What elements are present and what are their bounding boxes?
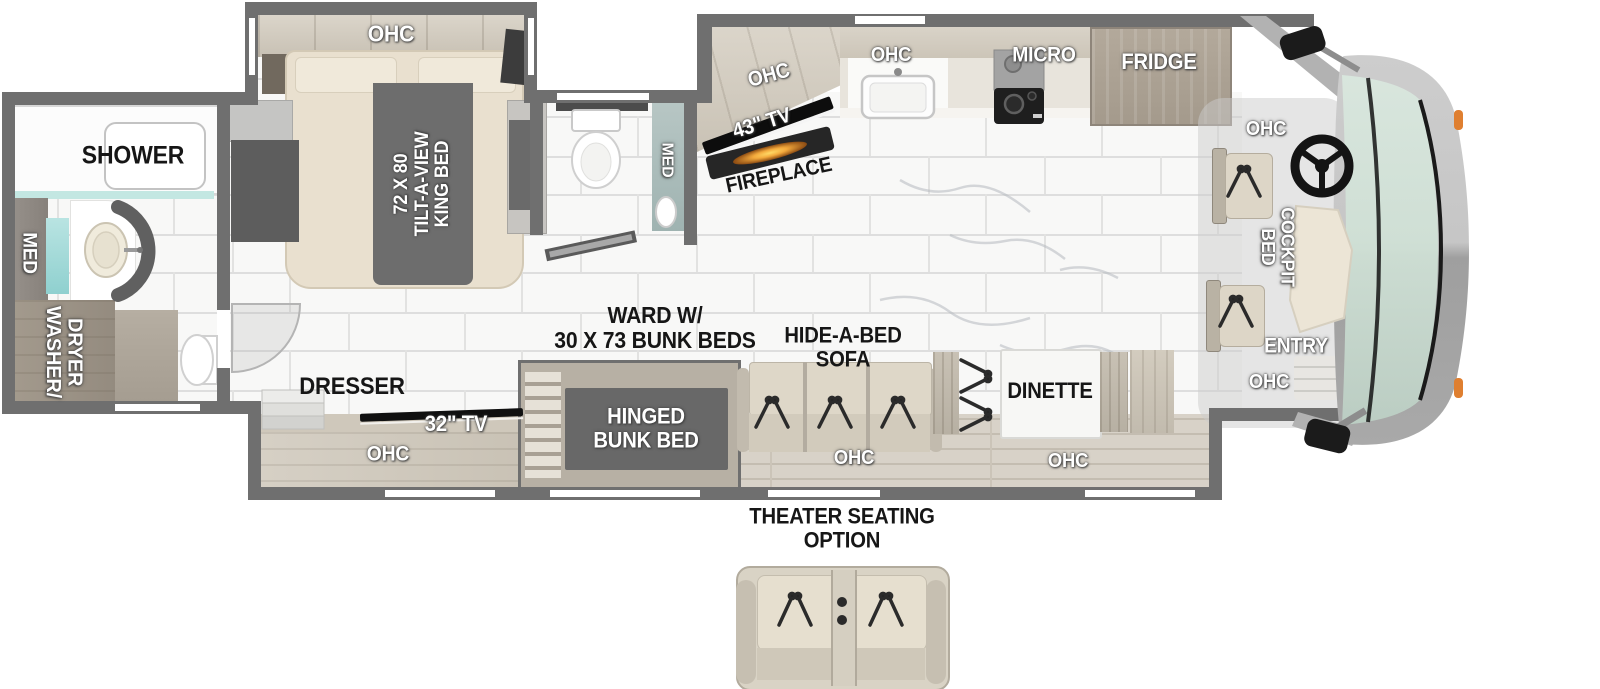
tv-32-label: 32" TV <box>425 412 488 436</box>
window-bedslide-left <box>249 18 255 75</box>
fireplace-label: FIREPLACE <box>724 154 834 199</box>
dinette-cabinet-right <box>1130 350 1174 433</box>
window-rear-bottom <box>115 404 200 411</box>
ohc-bedroom-label: OHC <box>368 22 414 47</box>
counter-front-edge <box>840 108 1090 118</box>
windshield-edge <box>1420 100 1441 400</box>
bedroom-tv-left <box>231 140 299 242</box>
entry-steps <box>1294 356 1338 400</box>
window-slide-4 <box>1085 490 1195 497</box>
ward-bunks-label: WARD W/ 30 X 73 BUNK BEDS <box>554 303 755 353</box>
windshield <box>1342 75 1438 425</box>
kitchen-ohc-angled <box>697 27 845 152</box>
wall-midbath-left <box>530 103 543 235</box>
wall-slide-left <box>248 401 261 499</box>
fridge-label: FRIDGE <box>1121 50 1196 74</box>
wall-rear-right-lower <box>217 368 230 414</box>
hide-a-bed-label: HIDE-A-BED SOFA <box>784 323 901 371</box>
window-slide-1 <box>385 490 495 497</box>
bunk-ladder <box>525 372 561 478</box>
rear-toilet <box>181 335 213 385</box>
wall-bottom-right-seg <box>1222 408 1344 421</box>
wall-kitchen-top <box>697 14 1314 27</box>
bedroom-cabinet-left <box>229 100 293 142</box>
rear-bath-cabinet <box>115 310 178 401</box>
window-bedslide-right <box>528 18 534 75</box>
ohc-dresser-label: OHC <box>367 444 409 467</box>
wall-rear-right-upper <box>217 92 230 310</box>
sofa-divider-1 <box>803 362 807 452</box>
midbath-shelf <box>556 102 648 111</box>
entry-label: ENTRY <box>1264 336 1328 359</box>
king-bed-label: 72 X 80 TILT-A-VIEW KING BED <box>392 132 454 237</box>
wall-midbath-right <box>684 103 697 245</box>
toilet-bowl <box>572 132 620 188</box>
wall-rear-top <box>2 92 230 105</box>
dinette-cabinet-left <box>933 352 959 434</box>
ohc-sink-label: OHC <box>871 45 911 67</box>
wall-rear-left <box>2 92 15 414</box>
midbath-door <box>545 230 637 261</box>
bath-door-swing <box>232 304 300 372</box>
window-slide-3 <box>768 490 880 497</box>
cockpit-bed-label: COCKPIT BED <box>1258 207 1297 287</box>
wall-bedslide-top <box>245 2 537 15</box>
passenger-seat <box>1219 285 1265 347</box>
theater-seating-label: THEATER SEATING OPTION <box>749 504 934 552</box>
ohc-dinette-label: OHC <box>1048 451 1088 473</box>
wall-slide-right <box>1209 408 1222 500</box>
mirror-top <box>1278 17 1359 91</box>
dinette-label: DINETTE <box>1007 379 1092 403</box>
window-kitchen-top <box>855 16 925 24</box>
vanity-counter <box>70 200 136 302</box>
micro-label: MICRO <box>1012 45 1075 68</box>
wall-kitchen-jog <box>697 14 712 103</box>
washer-dryer-label: WASHER/ DRYER <box>41 306 84 398</box>
window-midbath-top <box>557 93 649 100</box>
shower-label: SHOWER <box>82 143 184 170</box>
ohc-cockpit-bottom-label: OHC <box>1249 372 1289 394</box>
marble-veins <box>880 180 1126 363</box>
rear-toilet-tank <box>202 336 217 384</box>
toilet-tank <box>572 110 620 131</box>
sofa-arm-left <box>737 368 749 452</box>
hinged-bunk-label: HINGED BUNK BED <box>593 404 698 452</box>
ohc-sofa-label: OHC <box>834 448 874 470</box>
med-midbath-label: MED <box>658 143 675 178</box>
window-slide-2 <box>550 490 700 497</box>
dinette-bench-right <box>1100 352 1128 432</box>
front-cap-body <box>1334 55 1470 445</box>
cap-side-rail-top <box>1240 16 1360 102</box>
med-mirror <box>46 218 69 294</box>
rv-floorplan-canvas: SHOWER MED WASHER/ DRYER OHC 72 X 80 TIL… <box>0 0 1600 689</box>
med-rear-label: MED <box>18 232 39 274</box>
theater-armrest-left <box>736 580 756 684</box>
theater-armrest-right <box>926 580 946 684</box>
marker-light-top <box>1454 110 1463 130</box>
marker-light-bottom <box>1454 378 1463 398</box>
windshield-divider <box>1368 78 1379 422</box>
sofa-divider-2 <box>866 362 870 452</box>
ohc-cockpit-top-label: OHC <box>1246 119 1286 141</box>
theater-console <box>831 570 857 686</box>
dresser-label: DRESSER <box>299 374 404 400</box>
